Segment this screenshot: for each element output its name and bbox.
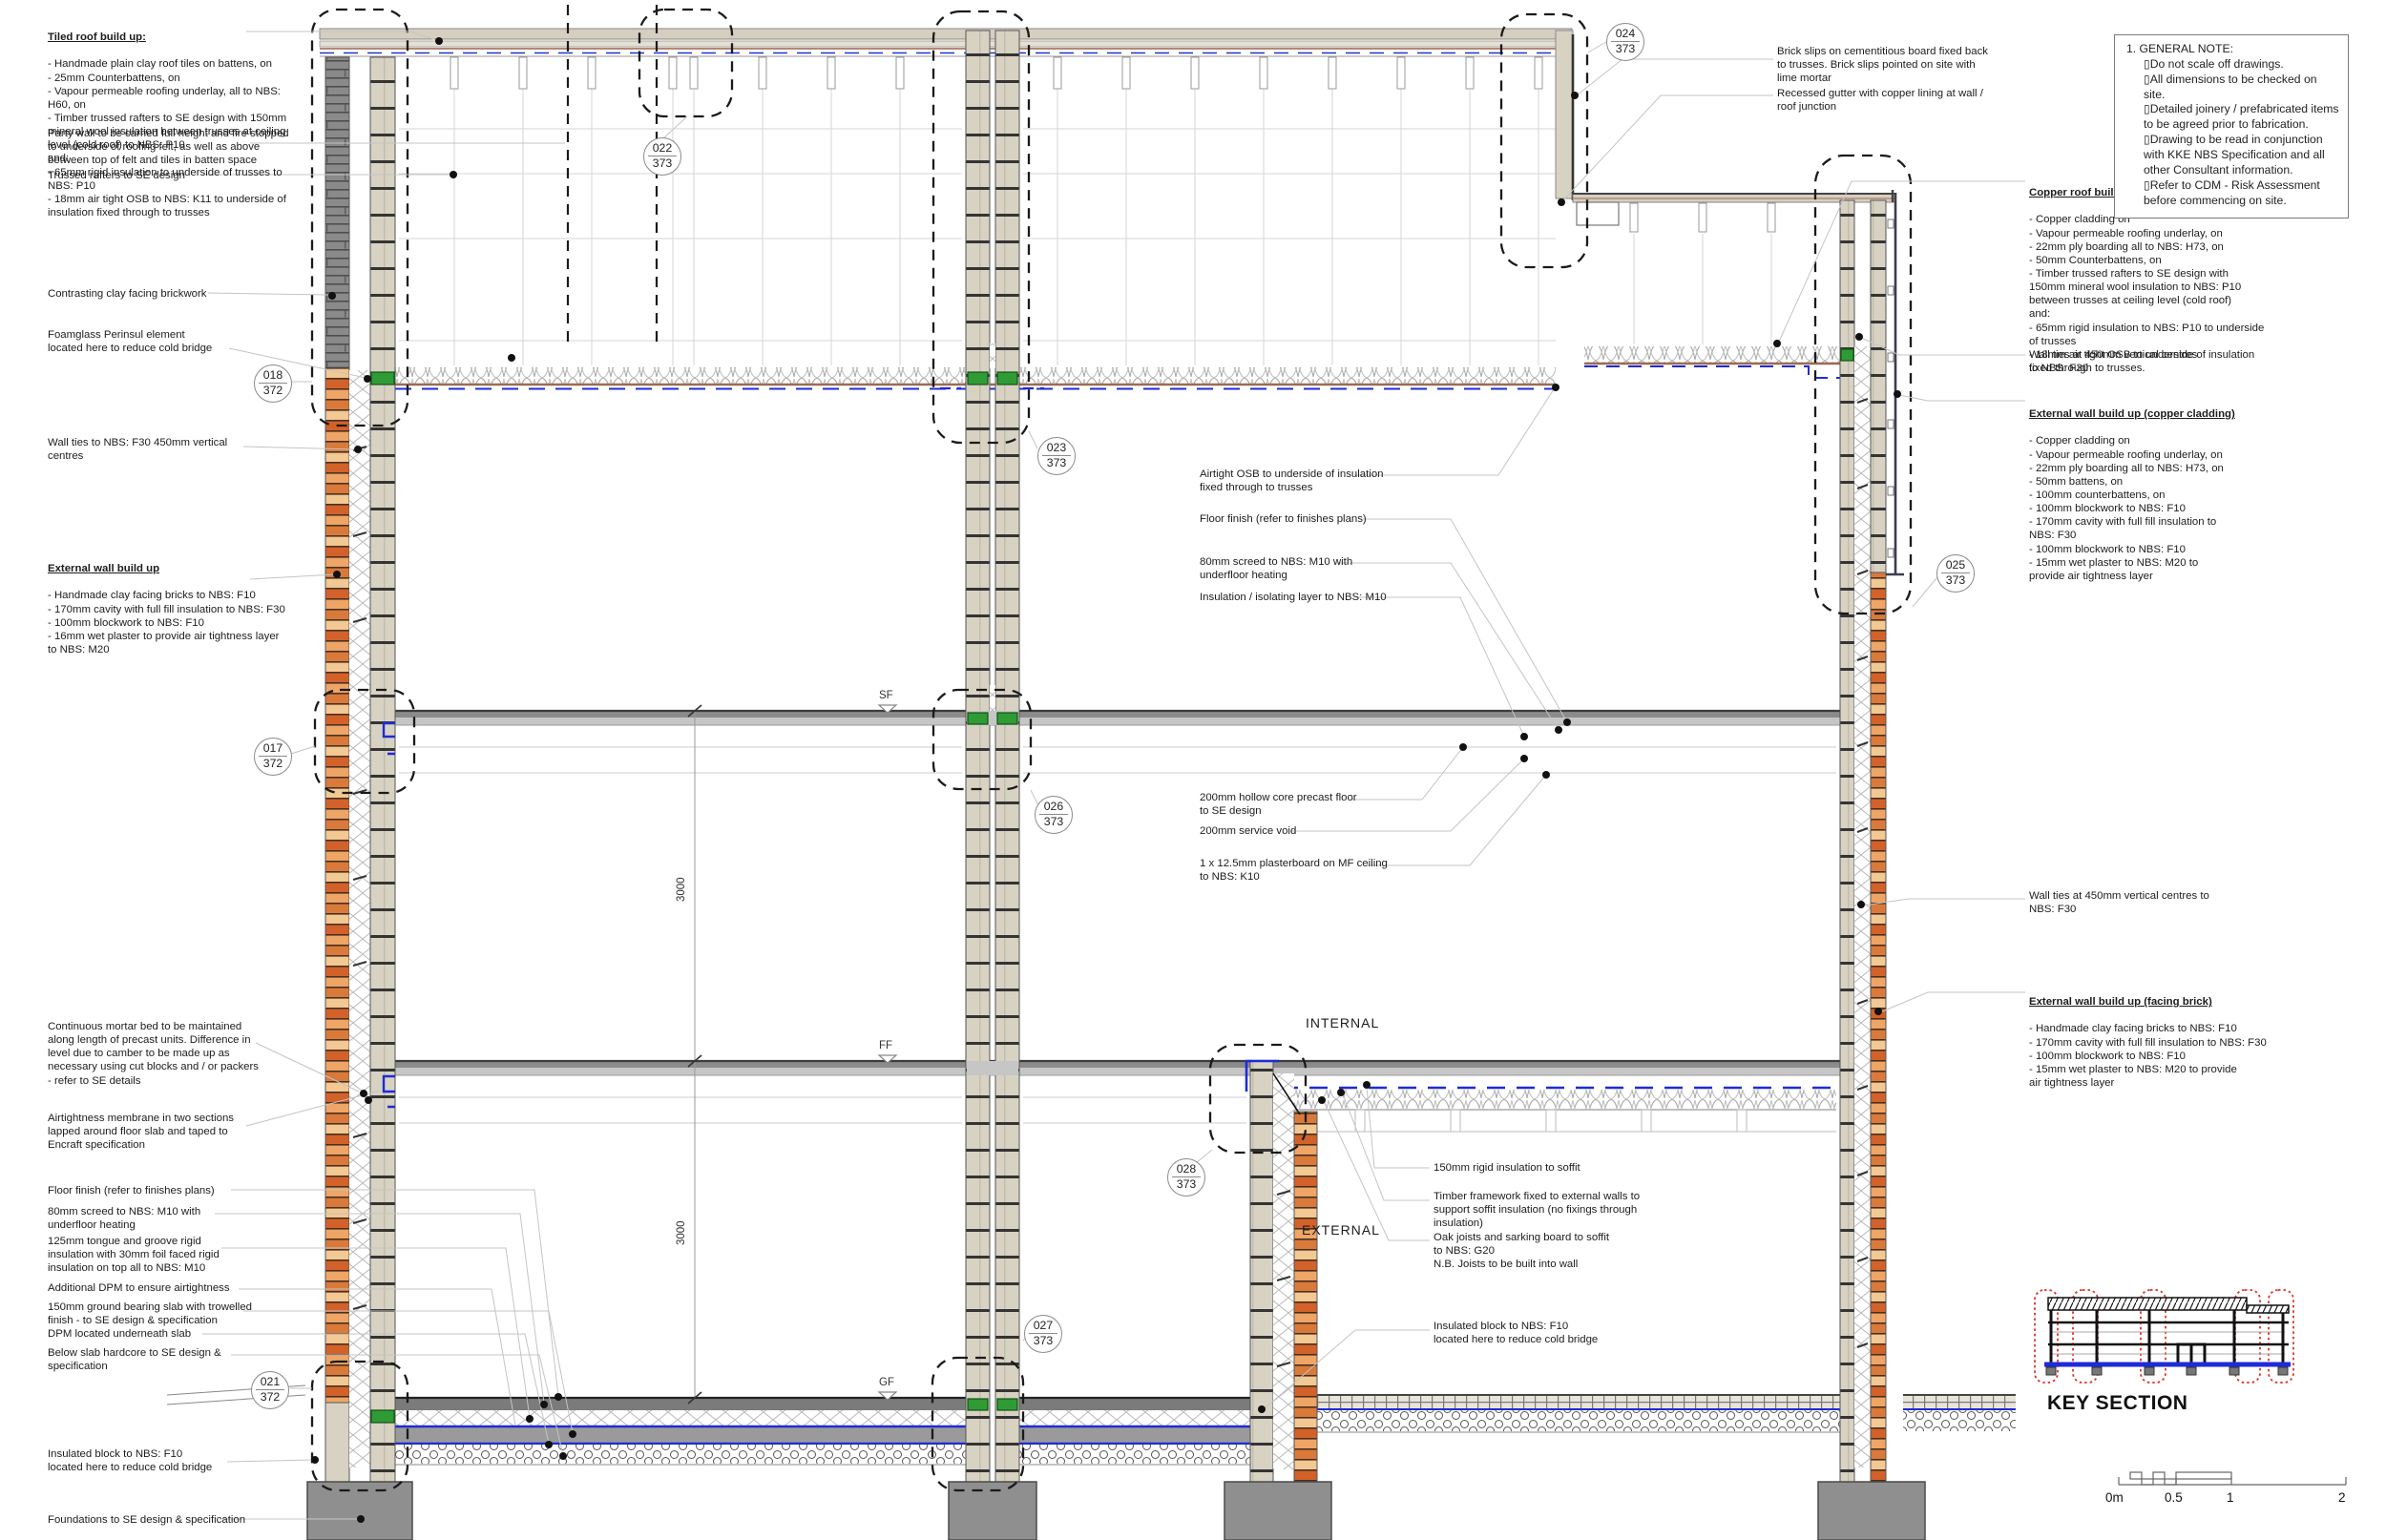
section-drawing	[0, 0, 2386, 1540]
level-markers	[879, 705, 896, 1400]
detail-bubble-018[interactable]: 018372	[254, 364, 292, 403]
ceiling-insulation-right	[1584, 346, 1840, 378]
general-note-item: ▯Detailed joinery / prefabricated items …	[2144, 102, 2340, 133]
note-oak-joists: Oak joists and sarking board to soffit t…	[1434, 1231, 1663, 1271]
scale-label-05: 0.5	[2165, 1490, 2183, 1505]
scale-label-2: 2	[2338, 1490, 2346, 1505]
note-screed-left: 80mm screed to NBS: M10 with underfloor …	[48, 1205, 258, 1232]
note-insulation-iso: Insulation / isolating layer to NBS: M10	[1200, 591, 1429, 604]
dimension-3000-upper: 3000	[676, 877, 687, 902]
note-insulation-125: 125mm tongue and groove rigid insulation…	[48, 1235, 277, 1275]
note-timber-framework: Timber framework fixed to external walls…	[1434, 1190, 1672, 1230]
external-ground	[1317, 1395, 2016, 1432]
note-ext-wall-brick: External wall build up (facing brick) - …	[2029, 982, 2277, 1090]
ground-floor-buildup	[395, 1395, 2016, 1465]
note-service-void: 200mm service void	[1200, 824, 1391, 838]
note-continuous-mortar: Continuous mortar bed to be maintained a…	[48, 1020, 286, 1088]
note-title: Tiled roof build up:	[48, 31, 288, 44]
note-dpm-under: DPM located underneath slab	[48, 1327, 277, 1341]
storey-dimension	[688, 705, 701, 1404]
detail-bubble-022[interactable]: 022373	[643, 137, 681, 176]
note-plasterboard: 1 x 12.5mm plasterboard on MF ceiling to…	[1200, 857, 1410, 884]
detail-bubble-027[interactable]: 027373	[1024, 1315, 1062, 1353]
leader-dots	[311, 37, 1901, 1523]
note-party-wall: Party wall to be carried full height and…	[48, 127, 305, 167]
detail-bubble-028[interactable]: 028373	[1167, 1158, 1205, 1197]
note-floor-finish-mid: Floor finish (refer to finishes plans)	[1200, 512, 1410, 526]
note-ext-wall-copper: External wall build up (copper cladding)…	[2029, 394, 2268, 583]
note-floor-finish-left: Floor finish (refer to finishes plans)	[48, 1184, 277, 1197]
drawing-sheet: Tiled roof build up: - Handmade plain cl…	[0, 0, 2386, 1540]
note-contrasting-brick: Contrasting clay facing brickwork	[48, 287, 258, 301]
scale-bar	[2119, 1472, 2346, 1485]
detail-bubble-024[interactable]: 024373	[1606, 23, 1644, 61]
dimension-3000-lower: 3000	[676, 1220, 687, 1245]
internal-label: INTERNAL	[1306, 1015, 1379, 1030]
wall-4-external	[1840, 193, 1904, 1482]
note-wall-ties-upper: Wall ties at 450mm vertical centres to N…	[2029, 348, 2249, 375]
detail-bubble-017[interactable]: 017372	[254, 738, 292, 776]
leader-lines	[167, 31, 2025, 1519]
note-wall-ties-left: Wall ties to NBS: F30 450mm vertical cen…	[48, 436, 258, 463]
note-below-hardcore: Below slab hardcore to SE design & speci…	[48, 1346, 277, 1373]
wall-3-external	[1246, 1061, 1317, 1482]
note-recessed-gutter: Recessed gutter with copper lining at wa…	[1777, 87, 2025, 114]
detail-bubble-021[interactable]: 021372	[251, 1371, 289, 1409]
external-label: EXTERNAL	[1302, 1222, 1380, 1238]
note-insulated-block-left: Insulated block to NBS: F10 located here…	[48, 1447, 277, 1474]
second-floor-slab	[395, 711, 1840, 773]
foundations	[307, 1482, 1925, 1540]
detail-bubble-025[interactable]: 025373	[1936, 554, 1975, 593]
note-hollow-core: 200mm hollow core precast floor to SE de…	[1200, 791, 1400, 818]
first-floor-slab	[395, 1061, 1840, 1132]
note-airtightness-membrane: Airtightness membrane in two sections la…	[48, 1112, 277, 1152]
key-section-diagram	[2035, 1290, 2293, 1383]
note-tiled-roof-buildup: Tiled roof build up: - Handmade plain cl…	[48, 17, 288, 219]
detail-bubble-023[interactable]: 023373	[1037, 437, 1076, 475]
wall-1-external	[325, 57, 395, 1482]
general-note-title: 1. GENERAL NOTE:	[2126, 42, 2340, 57]
note-foamglass: Foamglass Perinsul element located here …	[48, 328, 258, 355]
note-brick-slips: Brick slips on cementitious board fixed …	[1777, 45, 2025, 85]
note-ext-wall-left: External wall build up - Handmade clay f…	[48, 549, 286, 656]
note-rigid-soffit: 150mm rigid insulation to soffit	[1434, 1161, 1643, 1175]
key-section-title: KEY SECTION	[2047, 1392, 2187, 1415]
general-note-box: 1. GENERAL NOTE: ▯Do not scale off drawi…	[2114, 34, 2349, 219]
general-note-item: ▯Drawing to be read in conjunction with …	[2144, 133, 2340, 178]
general-note-item: ▯All dimensions to be checked on site.	[2144, 73, 2340, 103]
general-note-item: ▯Refer to CDM - Risk Assessment before c…	[2144, 178, 2340, 209]
general-note-item: ▯Do not scale off drawings.	[2144, 57, 2340, 73]
level-label-ff: FF	[879, 1040, 892, 1051]
note-wall-ties-lower: Wall ties at 450mm vertical centres to N…	[2029, 889, 2258, 916]
scale-label-1: 1	[2227, 1490, 2234, 1505]
note-ground-slab: 150mm ground bearing slab with trowelled…	[48, 1301, 296, 1327]
level-label-sf: SF	[879, 690, 893, 701]
note-insulated-block-mid: Insulated block to NBS: F10 located here…	[1434, 1320, 1663, 1346]
detail-bubble-026[interactable]: 026373	[1035, 796, 1073, 834]
note-additional-dpm: Additional DPM to ensure airtightness	[48, 1281, 286, 1295]
note-screed-mid: 80mm screed to NBS: M10 with underfloor …	[1200, 555, 1391, 582]
scale-label-0m: 0m	[2105, 1490, 2124, 1505]
tiled-roof	[320, 29, 1572, 89]
note-airtight-osb: Airtight OSB to underside of insulation …	[1200, 468, 1400, 494]
level-label-gf: GF	[879, 1377, 894, 1388]
note-trussed-rafters: Trussed rafters to SE design	[48, 169, 258, 182]
note-foundations: Foundations to SE design & specification	[48, 1513, 286, 1527]
